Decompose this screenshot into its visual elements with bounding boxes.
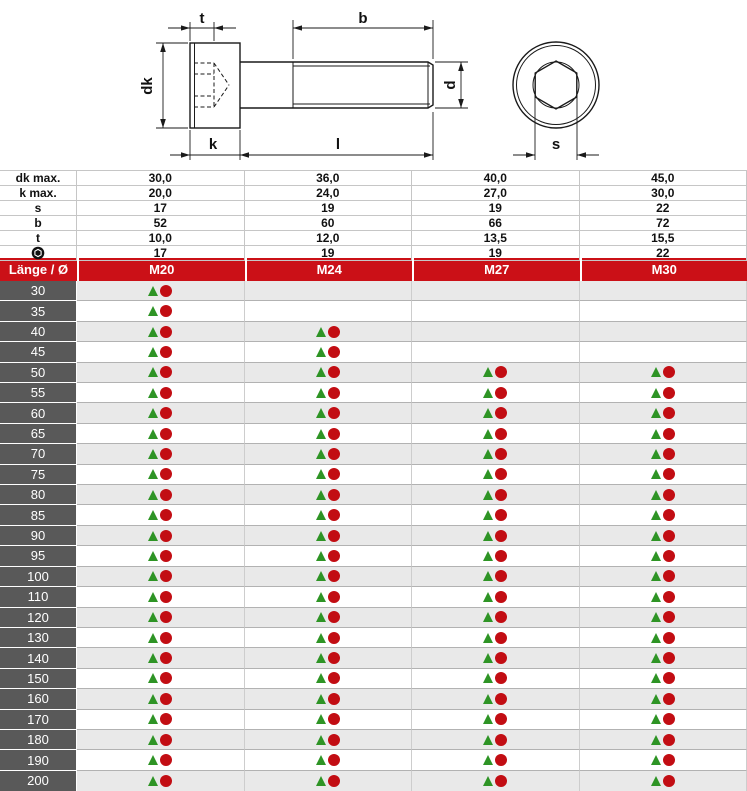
availability-markers bbox=[483, 509, 507, 521]
circle-marker bbox=[495, 591, 507, 603]
availability-markers bbox=[483, 652, 507, 664]
circle-marker bbox=[663, 448, 675, 460]
availability-markers bbox=[651, 754, 675, 766]
dim-label-k: k bbox=[209, 136, 218, 153]
availability-markers bbox=[148, 387, 172, 399]
triangle-marker bbox=[483, 735, 493, 745]
availability-markers bbox=[483, 672, 507, 684]
circle-marker bbox=[160, 305, 172, 317]
circle-marker bbox=[495, 693, 507, 705]
triangle-marker bbox=[651, 755, 661, 765]
availability-cell bbox=[245, 771, 413, 791]
availability-cell bbox=[77, 750, 245, 770]
availability-cell bbox=[580, 608, 747, 628]
availability-cell bbox=[77, 608, 245, 628]
availability-markers bbox=[148, 366, 172, 378]
length-label: 130 bbox=[0, 628, 77, 648]
availability-markers bbox=[651, 468, 675, 480]
availability-cell bbox=[580, 730, 747, 750]
availability-markers bbox=[651, 734, 675, 746]
circle-marker bbox=[328, 632, 340, 644]
circle-marker bbox=[328, 570, 340, 582]
length-label: 180 bbox=[0, 730, 77, 750]
availability-cell bbox=[580, 628, 747, 648]
hidden-socket-lines bbox=[194, 63, 229, 107]
availability-markers bbox=[316, 448, 340, 460]
triangle-marker bbox=[651, 551, 661, 561]
circle-marker bbox=[328, 509, 340, 521]
circle-marker bbox=[495, 407, 507, 419]
triangle-marker bbox=[651, 367, 661, 377]
availability-cell bbox=[245, 608, 413, 628]
availability-markers bbox=[483, 489, 507, 501]
circle-marker bbox=[328, 672, 340, 684]
circle-marker bbox=[328, 407, 340, 419]
size-row-180: 180 bbox=[0, 730, 747, 750]
availability-markers bbox=[148, 754, 172, 766]
triangle-marker bbox=[483, 755, 493, 765]
spec-value: 27,0 bbox=[412, 186, 580, 200]
availability-cell bbox=[77, 689, 245, 709]
circle-marker bbox=[160, 570, 172, 582]
circle-marker bbox=[495, 387, 507, 399]
triangle-marker bbox=[651, 673, 661, 683]
spec-row: dk max.30,036,040,045,0 bbox=[0, 171, 747, 186]
circle-marker bbox=[663, 693, 675, 705]
availability-markers bbox=[148, 428, 172, 440]
circle-marker bbox=[328, 468, 340, 480]
spec-label: k max. bbox=[0, 186, 77, 200]
triangle-marker bbox=[148, 286, 158, 296]
availability-cell bbox=[77, 710, 245, 730]
spec-value: 19 bbox=[245, 201, 413, 215]
column-header-m20: M20 bbox=[77, 258, 245, 281]
availability-markers bbox=[316, 713, 340, 725]
availability-cell bbox=[245, 526, 413, 546]
availability-cell bbox=[412, 730, 580, 750]
triangle-marker bbox=[148, 367, 158, 377]
triangle-marker bbox=[148, 653, 158, 663]
availability-cell bbox=[412, 689, 580, 709]
circle-marker bbox=[495, 713, 507, 725]
triangle-marker bbox=[316, 429, 326, 439]
circle-marker bbox=[328, 611, 340, 623]
availability-cell bbox=[77, 648, 245, 668]
availability-markers bbox=[148, 713, 172, 725]
availability-markers bbox=[316, 468, 340, 480]
size-row-130: 130 bbox=[0, 628, 747, 648]
triangle-marker bbox=[483, 469, 493, 479]
triangle-marker bbox=[316, 571, 326, 581]
circle-marker bbox=[663, 509, 675, 521]
availability-markers bbox=[316, 672, 340, 684]
availability-markers bbox=[316, 591, 340, 603]
length-label: 55 bbox=[0, 383, 77, 403]
column-header-m30: M30 bbox=[580, 258, 747, 281]
size-row-60: 60 bbox=[0, 403, 747, 423]
circle-marker bbox=[160, 734, 172, 746]
dim-label-dk: dk bbox=[139, 77, 156, 95]
spec-row: b52606672 bbox=[0, 216, 747, 231]
triangle-marker bbox=[148, 592, 158, 602]
availability-markers bbox=[148, 775, 172, 787]
column-header-m27: M27 bbox=[412, 258, 580, 281]
availability-cell bbox=[245, 383, 413, 403]
availability-cell bbox=[580, 485, 747, 505]
size-table-body: 3035404550556065707580859095100110120130… bbox=[0, 281, 747, 791]
availability-cell bbox=[245, 505, 413, 525]
availability-cell bbox=[77, 322, 245, 342]
spec-row: s17191922 bbox=[0, 201, 747, 216]
circle-marker bbox=[328, 652, 340, 664]
circle-marker bbox=[495, 530, 507, 542]
availability-cell bbox=[245, 363, 413, 383]
triangle-marker bbox=[316, 449, 326, 459]
screw-end-view: s bbox=[513, 42, 599, 160]
circle-marker bbox=[663, 754, 675, 766]
triangle-marker bbox=[148, 408, 158, 418]
size-row-65: 65 bbox=[0, 424, 747, 444]
circle-marker bbox=[663, 734, 675, 746]
availability-cell bbox=[245, 485, 413, 505]
length-label: 190 bbox=[0, 750, 77, 770]
triangle-marker bbox=[148, 633, 158, 643]
circle-marker bbox=[160, 489, 172, 501]
availability-cell bbox=[412, 444, 580, 464]
size-row-190: 190 bbox=[0, 750, 747, 770]
availability-markers bbox=[148, 530, 172, 542]
availability-cell bbox=[245, 567, 413, 587]
length-label: 110 bbox=[0, 587, 77, 607]
triangle-marker bbox=[148, 714, 158, 724]
availability-cell bbox=[77, 730, 245, 750]
circle-marker bbox=[495, 632, 507, 644]
size-row-110: 110 bbox=[0, 587, 747, 607]
length-label: 75 bbox=[0, 465, 77, 485]
availability-markers bbox=[148, 672, 172, 684]
circle-marker bbox=[328, 448, 340, 460]
availability-markers bbox=[651, 530, 675, 542]
availability-cell bbox=[412, 485, 580, 505]
circle-marker bbox=[160, 387, 172, 399]
availability-markers bbox=[651, 387, 675, 399]
triangle-marker bbox=[316, 367, 326, 377]
spec-value: 22 bbox=[580, 201, 747, 215]
triangle-marker bbox=[651, 571, 661, 581]
spec-table: dk max.30,036,040,045,0k max.20,024,027,… bbox=[0, 170, 747, 258]
length-label: 65 bbox=[0, 424, 77, 444]
triangle-marker bbox=[316, 490, 326, 500]
length-label: 70 bbox=[0, 444, 77, 464]
spec-row: k max.20,024,027,030,0 bbox=[0, 186, 747, 201]
circle-marker bbox=[328, 693, 340, 705]
availability-markers bbox=[316, 530, 340, 542]
length-label: 35 bbox=[0, 301, 77, 321]
screw-side-view bbox=[190, 43, 433, 128]
size-row-55: 55 bbox=[0, 383, 747, 403]
circle-marker bbox=[328, 428, 340, 440]
circle-marker bbox=[663, 387, 675, 399]
availability-cell bbox=[77, 363, 245, 383]
availability-markers bbox=[483, 775, 507, 787]
length-label: 100 bbox=[0, 567, 77, 587]
availability-cell bbox=[580, 505, 747, 525]
triangle-marker bbox=[651, 388, 661, 398]
availability-cell bbox=[412, 628, 580, 648]
triangle-marker bbox=[316, 510, 326, 520]
availability-cell bbox=[77, 424, 245, 444]
spec-value: 13,5 bbox=[412, 231, 580, 245]
circle-marker bbox=[160, 754, 172, 766]
availability-cell bbox=[580, 526, 747, 546]
availability-cell bbox=[412, 383, 580, 403]
triangle-marker bbox=[483, 571, 493, 581]
size-row-45: 45 bbox=[0, 342, 747, 362]
triangle-marker bbox=[148, 694, 158, 704]
spec-value: 45,0 bbox=[580, 171, 747, 185]
length-label: 150 bbox=[0, 669, 77, 689]
triangle-marker bbox=[148, 429, 158, 439]
spec-value: 10,0 bbox=[77, 231, 245, 245]
triangle-marker bbox=[483, 449, 493, 459]
triangle-marker bbox=[316, 735, 326, 745]
length-label: 200 bbox=[0, 771, 77, 791]
availability-markers bbox=[148, 550, 172, 562]
availability-cell bbox=[245, 730, 413, 750]
triangle-marker bbox=[148, 776, 158, 786]
availability-cell bbox=[412, 608, 580, 628]
spec-value: 72 bbox=[580, 216, 747, 230]
length-label: 45 bbox=[0, 342, 77, 362]
availability-cell bbox=[580, 648, 747, 668]
spec-row: t10,012,013,515,5 bbox=[0, 231, 747, 246]
availability-markers bbox=[483, 428, 507, 440]
triangle-marker bbox=[651, 653, 661, 663]
availability-cell bbox=[580, 710, 747, 730]
availability-cell bbox=[412, 403, 580, 423]
availability-markers bbox=[483, 468, 507, 480]
size-row-100: 100 bbox=[0, 567, 747, 587]
availability-cell bbox=[77, 669, 245, 689]
availability-cell bbox=[245, 465, 413, 485]
availability-markers bbox=[651, 632, 675, 644]
length-label: 40 bbox=[0, 322, 77, 342]
length-label: 160 bbox=[0, 689, 77, 709]
triangle-marker bbox=[483, 551, 493, 561]
availability-cell bbox=[412, 465, 580, 485]
availability-cell bbox=[580, 342, 747, 362]
availability-markers bbox=[148, 285, 172, 297]
availability-cell bbox=[77, 546, 245, 566]
length-label: 50 bbox=[0, 363, 77, 383]
availability-markers bbox=[651, 428, 675, 440]
availability-cell bbox=[245, 546, 413, 566]
circle-marker bbox=[160, 713, 172, 725]
triangle-marker bbox=[651, 776, 661, 786]
circle-marker bbox=[495, 509, 507, 521]
triangle-marker bbox=[148, 490, 158, 500]
availability-cell bbox=[77, 628, 245, 648]
size-row-95: 95 bbox=[0, 546, 747, 566]
triangle-marker bbox=[148, 327, 158, 337]
triangle-marker bbox=[316, 592, 326, 602]
availability-markers bbox=[148, 591, 172, 603]
availability-cell bbox=[412, 648, 580, 668]
availability-cell bbox=[245, 322, 413, 342]
length-label: 170 bbox=[0, 710, 77, 730]
availability-markers bbox=[483, 570, 507, 582]
circle-marker bbox=[663, 591, 675, 603]
availability-cell bbox=[580, 689, 747, 709]
circle-marker bbox=[160, 428, 172, 440]
triangle-marker bbox=[651, 612, 661, 622]
circle-marker bbox=[663, 428, 675, 440]
availability-cell bbox=[77, 505, 245, 525]
availability-cell bbox=[412, 750, 580, 770]
availability-cell bbox=[412, 505, 580, 525]
triangle-marker bbox=[651, 592, 661, 602]
availability-cell bbox=[412, 342, 580, 362]
size-row-85: 85 bbox=[0, 505, 747, 525]
circle-marker bbox=[495, 672, 507, 684]
availability-cell bbox=[245, 689, 413, 709]
circle-marker bbox=[160, 611, 172, 623]
circle-marker bbox=[328, 530, 340, 542]
availability-markers bbox=[651, 570, 675, 582]
circle-marker bbox=[328, 734, 340, 746]
size-row-35: 35 bbox=[0, 301, 747, 321]
size-row-40: 40 bbox=[0, 322, 747, 342]
availability-cell bbox=[580, 424, 747, 444]
availability-markers bbox=[316, 550, 340, 562]
circle-marker bbox=[160, 407, 172, 419]
circle-marker bbox=[663, 611, 675, 623]
circle-marker bbox=[160, 632, 172, 644]
availability-markers bbox=[651, 366, 675, 378]
triangle-marker bbox=[483, 673, 493, 683]
circle-marker bbox=[495, 448, 507, 460]
availability-markers bbox=[148, 326, 172, 338]
availability-markers bbox=[316, 366, 340, 378]
triangle-marker bbox=[316, 633, 326, 643]
circle-marker bbox=[328, 775, 340, 787]
triangle-marker bbox=[483, 694, 493, 704]
availability-cell bbox=[580, 363, 747, 383]
availability-markers bbox=[316, 407, 340, 419]
availability-cell bbox=[580, 322, 747, 342]
circle-marker bbox=[328, 366, 340, 378]
triangle-marker bbox=[148, 306, 158, 316]
availability-markers bbox=[148, 570, 172, 582]
availability-cell bbox=[412, 424, 580, 444]
circle-marker bbox=[160, 448, 172, 460]
spec-value: 15,5 bbox=[580, 231, 747, 245]
triangle-marker bbox=[483, 592, 493, 602]
availability-cell bbox=[77, 444, 245, 464]
availability-markers bbox=[316, 326, 340, 338]
availability-markers bbox=[483, 632, 507, 644]
circle-marker bbox=[160, 672, 172, 684]
availability-cell bbox=[412, 771, 580, 791]
availability-cell bbox=[412, 546, 580, 566]
spec-value: 30,0 bbox=[77, 171, 245, 185]
circle-marker bbox=[663, 632, 675, 644]
availability-markers bbox=[483, 611, 507, 623]
size-row-170: 170 bbox=[0, 710, 747, 730]
circle-marker bbox=[495, 468, 507, 480]
availability-cell bbox=[412, 669, 580, 689]
triangle-marker bbox=[316, 551, 326, 561]
availability-markers bbox=[651, 652, 675, 664]
availability-markers bbox=[316, 509, 340, 521]
availability-cell bbox=[412, 363, 580, 383]
availability-markers bbox=[483, 550, 507, 562]
availability-cell bbox=[580, 301, 747, 321]
size-row-70: 70 bbox=[0, 444, 747, 464]
availability-cell bbox=[245, 669, 413, 689]
triangle-marker bbox=[316, 347, 326, 357]
availability-markers bbox=[483, 530, 507, 542]
availability-cell bbox=[245, 301, 413, 321]
availability-markers bbox=[316, 346, 340, 358]
size-table-header: Länge / Ø M20M24M27M30 bbox=[0, 258, 747, 281]
spec-value: 60 bbox=[245, 216, 413, 230]
availability-markers bbox=[483, 366, 507, 378]
size-row-90: 90 bbox=[0, 526, 747, 546]
triangle-marker bbox=[148, 469, 158, 479]
availability-cell bbox=[412, 526, 580, 546]
spec-value: 36,0 bbox=[245, 171, 413, 185]
length-label: 90 bbox=[0, 526, 77, 546]
availability-markers bbox=[483, 754, 507, 766]
triangle-marker bbox=[483, 510, 493, 520]
availability-markers bbox=[316, 570, 340, 582]
availability-markers bbox=[651, 550, 675, 562]
availability-markers bbox=[148, 448, 172, 460]
availability-markers bbox=[148, 652, 172, 664]
circle-marker bbox=[663, 652, 675, 664]
circle-marker bbox=[663, 468, 675, 480]
spec-value: 17 bbox=[77, 201, 245, 215]
circle-marker bbox=[663, 407, 675, 419]
circle-marker bbox=[160, 346, 172, 358]
size-table: Länge / Ø M20M24M27M30 30354045505560657… bbox=[0, 258, 747, 791]
triangle-marker bbox=[483, 490, 493, 500]
circle-marker bbox=[495, 366, 507, 378]
availability-cell bbox=[77, 485, 245, 505]
availability-cell bbox=[77, 383, 245, 403]
circle-marker bbox=[495, 734, 507, 746]
availability-markers bbox=[483, 713, 507, 725]
triangle-marker bbox=[148, 612, 158, 622]
column-header-m24: M24 bbox=[245, 258, 413, 281]
availability-markers bbox=[148, 305, 172, 317]
availability-markers bbox=[316, 632, 340, 644]
availability-markers bbox=[483, 591, 507, 603]
triangle-marker bbox=[148, 449, 158, 459]
availability-cell bbox=[580, 383, 747, 403]
spec-value: 40,0 bbox=[412, 171, 580, 185]
triangle-marker bbox=[651, 429, 661, 439]
triangle-marker bbox=[148, 551, 158, 561]
availability-cell bbox=[580, 281, 747, 301]
availability-markers bbox=[316, 652, 340, 664]
availability-cell bbox=[245, 587, 413, 607]
availability-markers bbox=[651, 591, 675, 603]
circle-marker bbox=[495, 550, 507, 562]
circle-marker bbox=[328, 713, 340, 725]
availability-markers bbox=[483, 448, 507, 460]
